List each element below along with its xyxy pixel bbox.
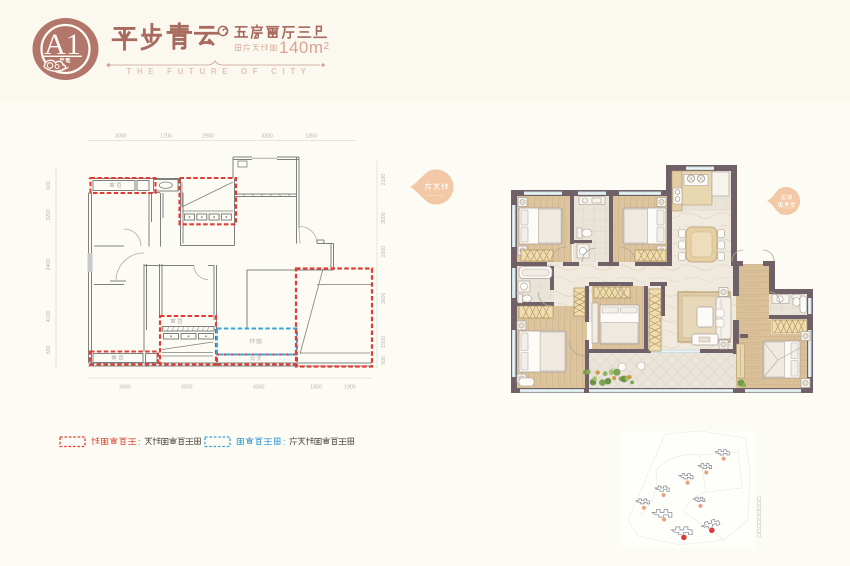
svg-text:1900: 1900	[344, 385, 356, 391]
svg-text:3600: 3600	[381, 293, 387, 305]
svg-text:3300: 3300	[261, 134, 273, 140]
svg-text:4100: 4100	[46, 310, 52, 322]
svg-text:2900: 2900	[202, 134, 214, 140]
svg-text:1850: 1850	[305, 134, 317, 140]
svg-text:3600: 3600	[119, 385, 131, 391]
svg-text:1500: 1500	[381, 246, 387, 258]
svg-text:4300: 4300	[253, 385, 265, 391]
svg-text:2100: 2100	[381, 174, 387, 186]
svg-text:3000: 3000	[181, 385, 193, 391]
svg-text:3000: 3000	[115, 134, 127, 140]
svg-text:3200: 3200	[46, 209, 52, 221]
svg-text:2400: 2400	[46, 259, 52, 271]
svg-text:1700: 1700	[160, 134, 172, 140]
svg-text:1500: 1500	[381, 336, 387, 348]
svg-text:600: 600	[46, 345, 52, 354]
svg-text:3000: 3000	[381, 212, 387, 224]
svg-text:600: 600	[46, 181, 52, 190]
svg-text::: :	[283, 437, 286, 447]
svg-text:1850: 1850	[310, 385, 322, 391]
svg-text::: :	[138, 437, 141, 447]
svg-text:500: 500	[381, 356, 387, 365]
